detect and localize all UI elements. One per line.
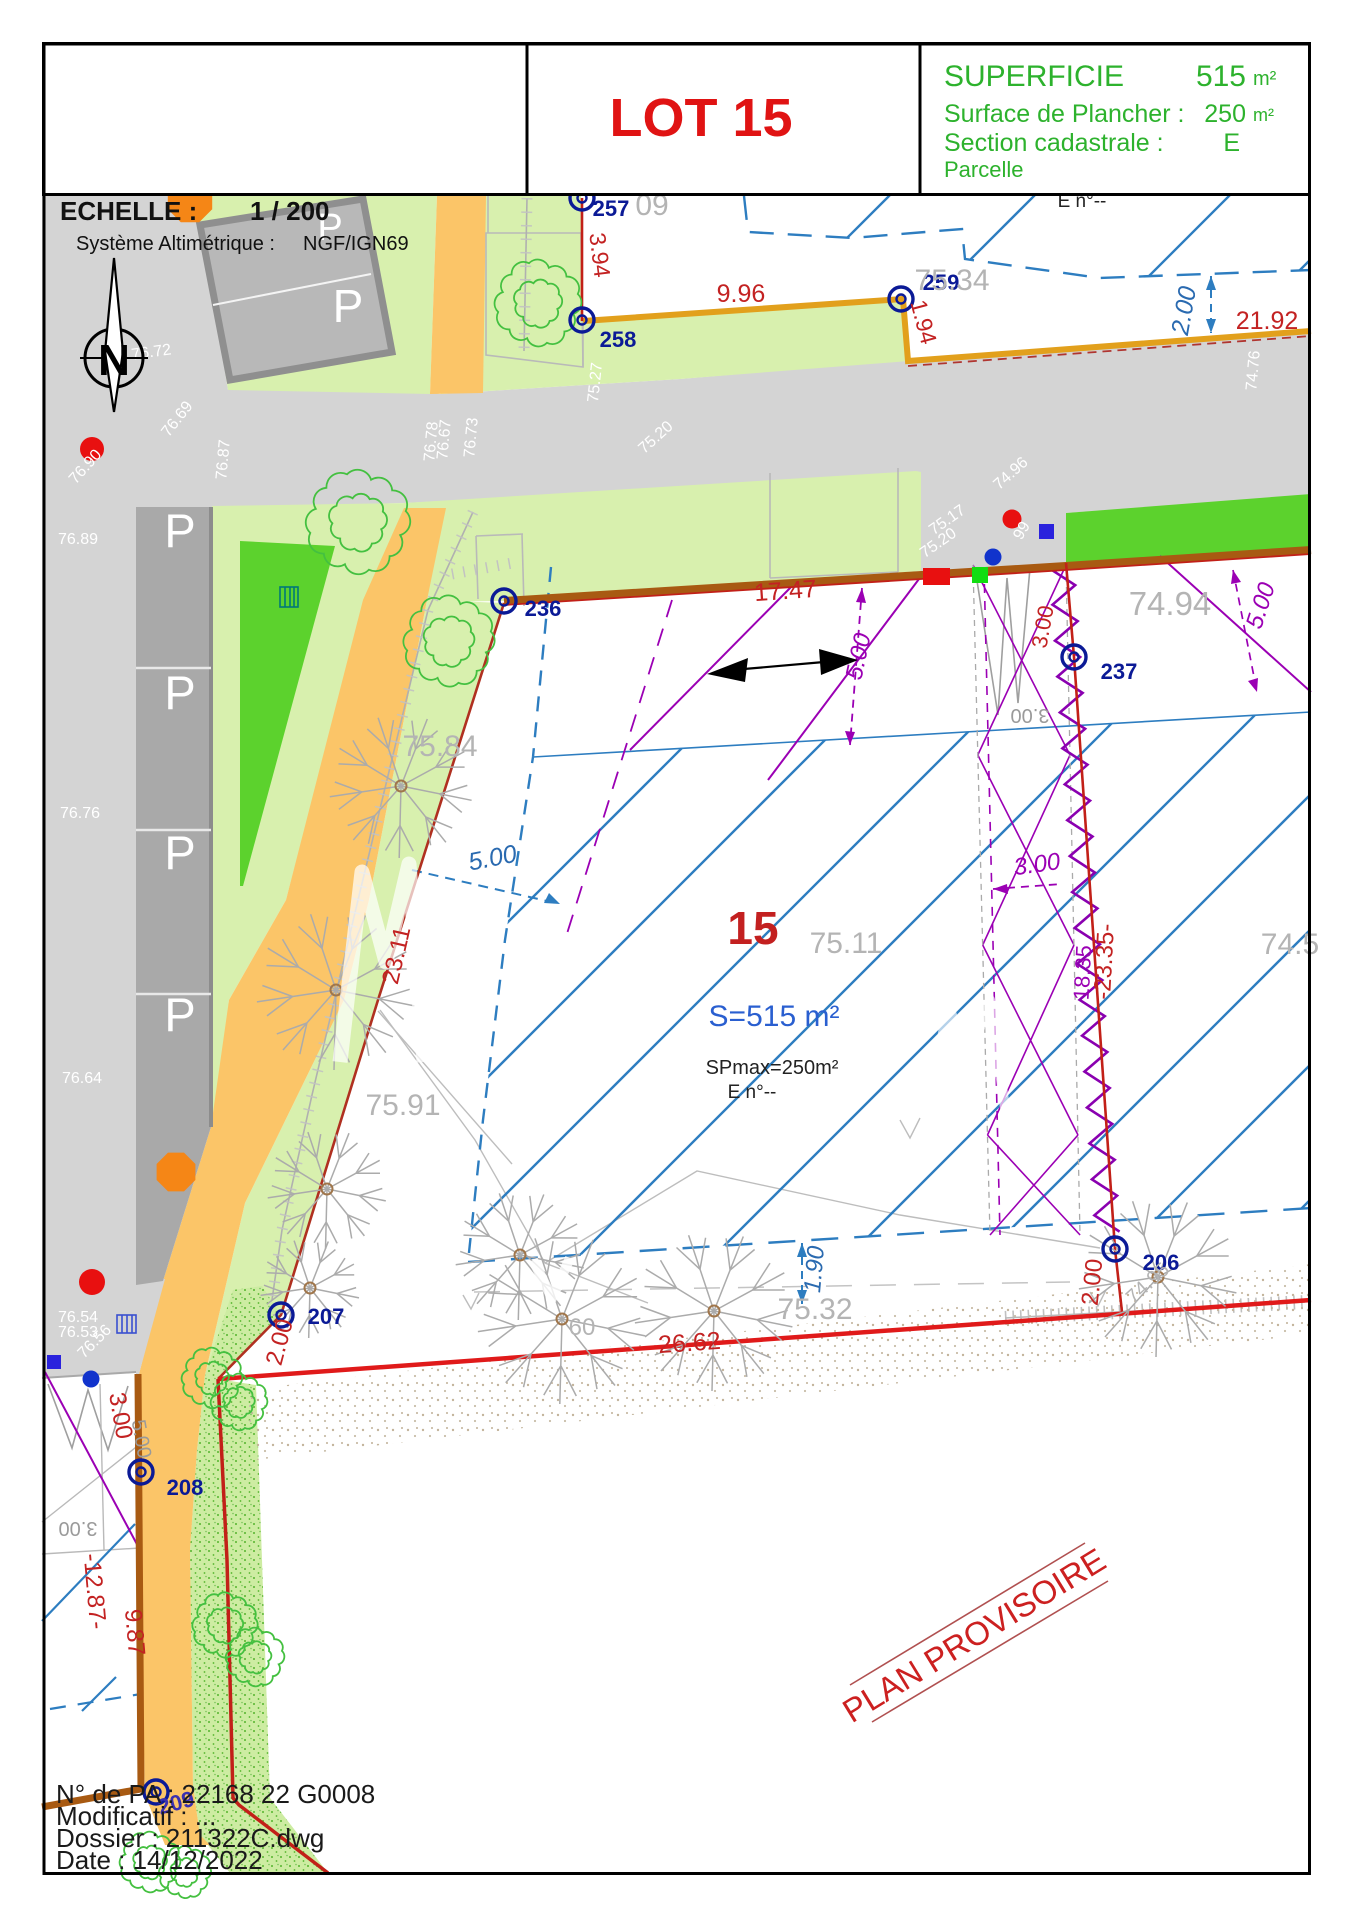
svg-text:207: 207 [308, 1304, 345, 1329]
svg-text:P: P [164, 988, 195, 1041]
svg-text:3.94: 3.94 [584, 231, 615, 279]
svg-text:Section cadastrale :: Section cadastrale : [944, 129, 1164, 157]
svg-text:76.87: 76.87 [213, 439, 233, 480]
svg-text:S=515 m²: S=515 m² [709, 1000, 840, 1033]
svg-text:257: 257 [593, 196, 630, 221]
svg-text:74.76: 74.76 [1243, 350, 1263, 391]
svg-text:Surface de Plancher :: Surface de Plancher : [944, 100, 1184, 128]
svg-text:75.11: 75.11 [810, 927, 883, 960]
svg-text:E: E [1223, 129, 1240, 157]
svg-text:P: P [164, 504, 195, 557]
svg-text:3.00: 3.00 [1011, 704, 1050, 726]
svg-text:E n°--: E n°-- [728, 1082, 777, 1103]
svg-text:250: 250 [1204, 100, 1246, 128]
svg-text:Parcelle: Parcelle [944, 157, 1023, 182]
svg-text:ECHELLE :: ECHELLE : [60, 196, 197, 226]
svg-text:21.92: 21.92 [1236, 307, 1299, 335]
svg-text:2.00: 2.00 [1077, 1258, 1109, 1307]
svg-text:SPmax=250m²: SPmax=250m² [706, 1057, 839, 1079]
svg-text:17.47: 17.47 [753, 575, 817, 607]
svg-text:76.89: 76.89 [58, 531, 98, 548]
svg-text:26.62: 26.62 [657, 1327, 721, 1359]
svg-text:75.84: 75.84 [402, 730, 477, 763]
svg-text:1 / 200: 1 / 200 [250, 196, 330, 226]
svg-text:208: 208 [167, 1475, 204, 1500]
svg-text:75.32: 75.32 [777, 1293, 852, 1326]
svg-text:75.91: 75.91 [365, 1089, 440, 1122]
svg-text:515: 515 [1196, 60, 1246, 93]
svg-text:P: P [164, 666, 195, 719]
svg-text:1.90: 1.90 [799, 1244, 830, 1294]
svg-text:-23.35-: -23.35- [1089, 923, 1120, 1000]
svg-text:9.87: 9.87 [119, 1608, 150, 1657]
svg-text:76.73: 76.73 [461, 417, 481, 458]
svg-text:76.78: 76.78 [421, 421, 441, 462]
svg-text:60: 60 [569, 1314, 596, 1341]
svg-text:75.34: 75.34 [914, 264, 989, 297]
svg-text:9.96: 9.96 [717, 280, 766, 308]
svg-text:258: 258 [600, 327, 637, 352]
svg-text:m²: m² [1253, 68, 1277, 90]
svg-text:74.94: 74.94 [1129, 585, 1212, 622]
svg-text:Système Altimétrique :: Système Altimétrique : [76, 233, 275, 255]
svg-text:P: P [333, 280, 364, 332]
svg-text:236: 236 [525, 596, 562, 621]
svg-text:P: P [164, 826, 195, 879]
svg-text:NGF/IGN69: NGF/IGN69 [303, 233, 409, 255]
svg-text:237: 237 [1101, 659, 1138, 684]
svg-text:SUPERFICIE: SUPERFICIE [944, 60, 1124, 93]
svg-text:76.64: 76.64 [62, 1070, 102, 1087]
svg-text:3.00: 3.00 [59, 1517, 98, 1539]
svg-text:LOT 15: LOT 15 [609, 88, 792, 148]
svg-text:76.76: 76.76 [60, 805, 100, 822]
svg-text:15: 15 [727, 902, 778, 954]
svg-text:N: N [98, 336, 130, 385]
svg-text:m²: m² [1253, 105, 1274, 125]
svg-text:Date : 14/12/2022: Date : 14/12/2022 [56, 1845, 263, 1875]
